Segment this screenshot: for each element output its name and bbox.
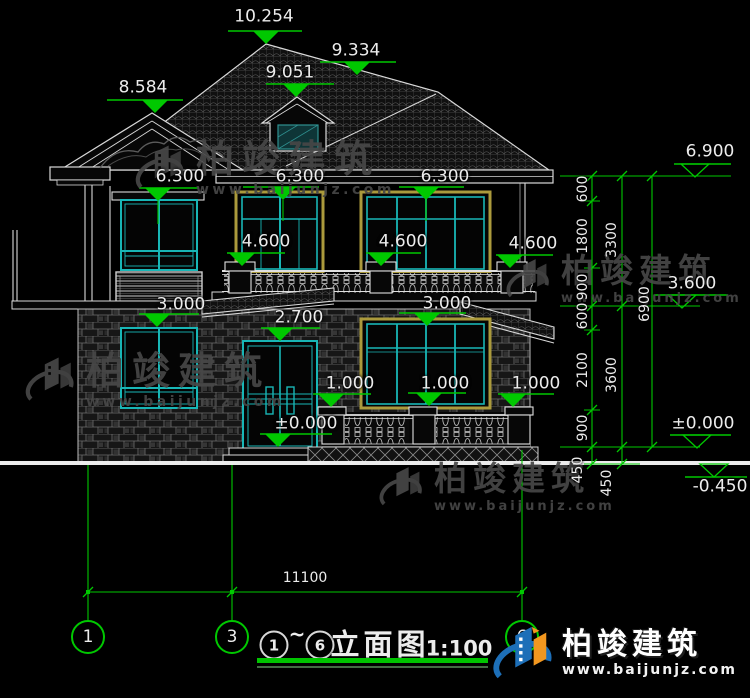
elev-right-mid: 3.600 [668,276,717,293]
elev-door-head: 2.700 [275,310,324,327]
title-bubble-start: 1 [260,631,289,660]
dim-seg-450a: 450 [571,457,585,484]
brand-logo-url: www.baijunjz.com [562,662,737,678]
grid-bubble-1: 1 [71,620,105,654]
elev-sill-mid: 1.000 [421,376,470,393]
elev-sill-left: 1.000 [326,376,375,393]
dim-floor-3300: 3300 [605,222,619,258]
title-tilde: ~ [289,624,306,644]
dim-seg-900a: 900 [576,274,590,301]
dim-bottom-11100: 11100 [283,571,328,585]
title-scale: 1:100 [426,639,493,660]
elev-eave-right: 6.300 [421,169,470,186]
elev-eave-left: 6.300 [156,169,205,186]
title-underline-thin [257,666,488,668]
elev-slab-left: 3.000 [157,297,206,314]
elev-right-zero: ±0.000 [672,416,735,433]
porch-balustrade [318,407,533,447]
dim-seg-900b: 900 [576,415,590,442]
elev-roof-peak: 10.254 [234,9,293,26]
dim-seg-600a: 600 [576,176,590,203]
cad-elevation-screenshot: 柏竣建筑 www.baijunjz.com 柏竣建筑 www.baijunjz.… [0,0,750,698]
dim-floor-3600: 3600 [605,357,619,393]
elev-window-head: 3.000 [423,296,472,313]
elev-ridge-right: 9.334 [332,43,381,60]
eave-band [216,170,553,183]
bay-window-2f [121,200,197,270]
title-underline [257,658,488,663]
porch-plinth [308,447,538,462]
title-name: 立面图 [330,631,429,660]
elev-balcony-left: 4.600 [242,234,291,251]
brand-logo-text: 柏竣建筑 [562,628,737,661]
elev-dormer: 9.051 [266,65,315,82]
bay-window-1f [121,328,197,408]
elevation-drawing [0,0,750,698]
brand-logo: 柏竣建筑 www.baijunjz.com [492,620,737,686]
dim-seg-1800: 1800 [576,218,590,254]
elev-balcony-right: 4.600 [509,236,558,253]
elev-gable-left: 8.584 [119,80,168,97]
dim-total-6900: 6900 [638,286,652,322]
elev-balcony-mid: 4.600 [379,234,428,251]
dim-floor-450b: 450 [600,470,614,497]
elev-right-base: -0.450 [693,479,748,496]
elev-right-eave: 6.900 [686,144,735,161]
grid-bubble-3: 3 [215,620,249,654]
elev-ground-door: ±0.000 [275,416,338,433]
dim-seg-2100: 2100 [576,352,590,388]
dim-seg-600b: 600 [576,303,590,330]
elev-sill-right: 1.000 [512,376,561,393]
elev-eave-mid: 6.300 [276,169,325,186]
brand-logo-icon [492,620,554,686]
